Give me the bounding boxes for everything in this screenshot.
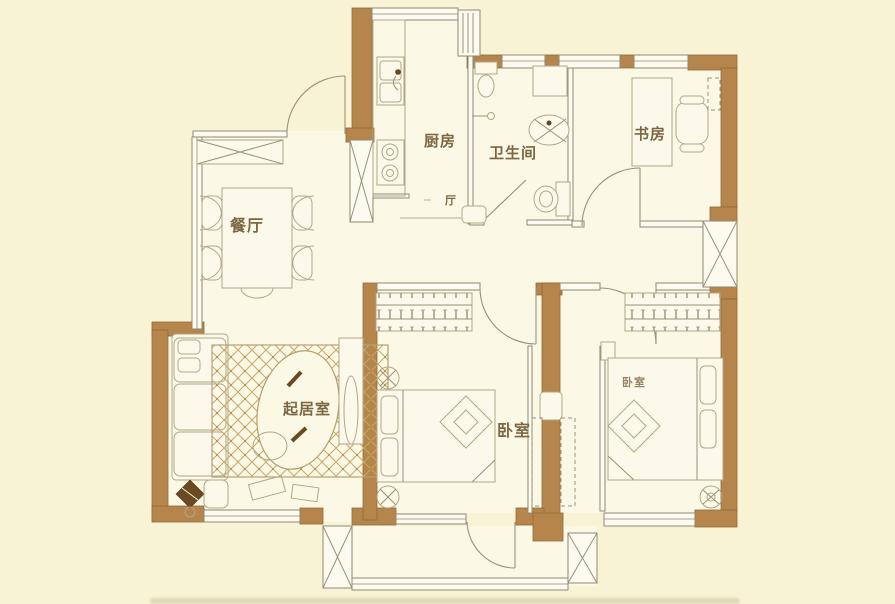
dining-table <box>222 188 292 288</box>
study-label: 书房 <box>634 125 666 143</box>
shoe-cabinet <box>462 206 486 223</box>
study-desk <box>632 78 672 166</box>
right-wall-shaft <box>703 221 737 287</box>
floor-plan: 餐厅 厨房 卫生间 书房 起居室 卧室 卧室 厅 <box>0 0 895 604</box>
tall-cabinet <box>339 338 363 444</box>
entry-door <box>287 76 345 134</box>
kitchen-column <box>350 140 373 222</box>
wardrobe-main <box>376 293 472 331</box>
dining-room-label: 餐厅 <box>229 216 264 235</box>
balcony-column-right <box>568 533 597 583</box>
side-table <box>204 480 228 508</box>
sideboard-cabinet <box>197 140 283 164</box>
nightstand <box>601 342 615 360</box>
hall-label: 厅 <box>445 194 457 207</box>
kitchen-stove <box>377 140 404 185</box>
kitchen-label: 厨房 <box>424 132 456 150</box>
washbasin <box>529 115 569 145</box>
living-room-label: 起居室 <box>282 400 331 418</box>
bathroom-label: 卫生间 <box>489 144 537 162</box>
bedroom-second-label: 卧室 <box>622 375 646 389</box>
floor-plan-drawing: 餐厅 厨房 卫生间 书房 起居室 卧室 卧室 厅 <box>0 0 895 604</box>
wardrobe-second <box>625 293 720 331</box>
balcony-column-left <box>323 526 352 588</box>
kitchen-radiator <box>458 10 480 56</box>
photo-edge-artifact <box>150 598 740 604</box>
kitchen-sink <box>377 57 404 105</box>
bedroom-main-label: 卧室 <box>497 421 531 440</box>
bath-cabinet <box>533 66 567 96</box>
bed-main <box>377 390 495 482</box>
